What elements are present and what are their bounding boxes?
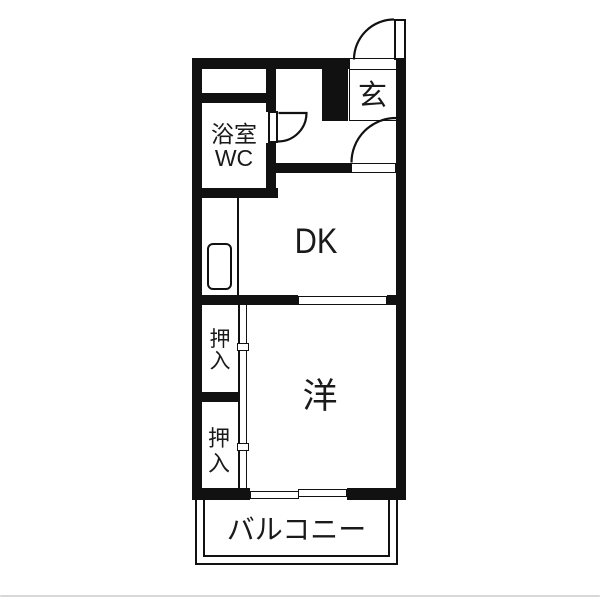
page-divider-line bbox=[0, 595, 600, 597]
label-closet-lower: 押 入 bbox=[198, 426, 240, 476]
label-balcony-text: バルコニー bbox=[203, 515, 390, 545]
label-closet-upper: 押 入 bbox=[199, 329, 241, 373]
label-balcony: バルコニー bbox=[203, 515, 390, 545]
label-dining-kitchen: DK bbox=[281, 224, 351, 259]
floorplan-canvas: 浴室 WC 玄 DK 洋 押 入 押 入 バルコニー bbox=[0, 0, 600, 600]
door-arcs-layer bbox=[0, 0, 600, 600]
bathroom-door-arc bbox=[278, 113, 307, 142]
entrance-door-arc bbox=[354, 20, 394, 60]
label-bathroom-line1: 浴室 bbox=[202, 123, 266, 147]
dk-door-arc bbox=[352, 118, 397, 163]
label-bathroom-wc: 浴室 WC bbox=[202, 123, 266, 170]
label-closet-lower-line2: 入 bbox=[198, 451, 240, 476]
label-closet-upper-line2: 入 bbox=[199, 351, 241, 373]
label-western-room-text: 洋 bbox=[285, 379, 355, 414]
label-dining-kitchen-text: DK bbox=[281, 224, 351, 259]
label-entrance: 玄 bbox=[349, 82, 396, 111]
label-bathroom-line2: WC bbox=[202, 147, 266, 171]
label-western-room: 洋 bbox=[285, 379, 355, 414]
label-closet-upper-line1: 押 bbox=[199, 329, 241, 351]
label-entrance-text: 玄 bbox=[349, 82, 396, 111]
label-closet-lower-line1: 押 bbox=[198, 426, 240, 451]
